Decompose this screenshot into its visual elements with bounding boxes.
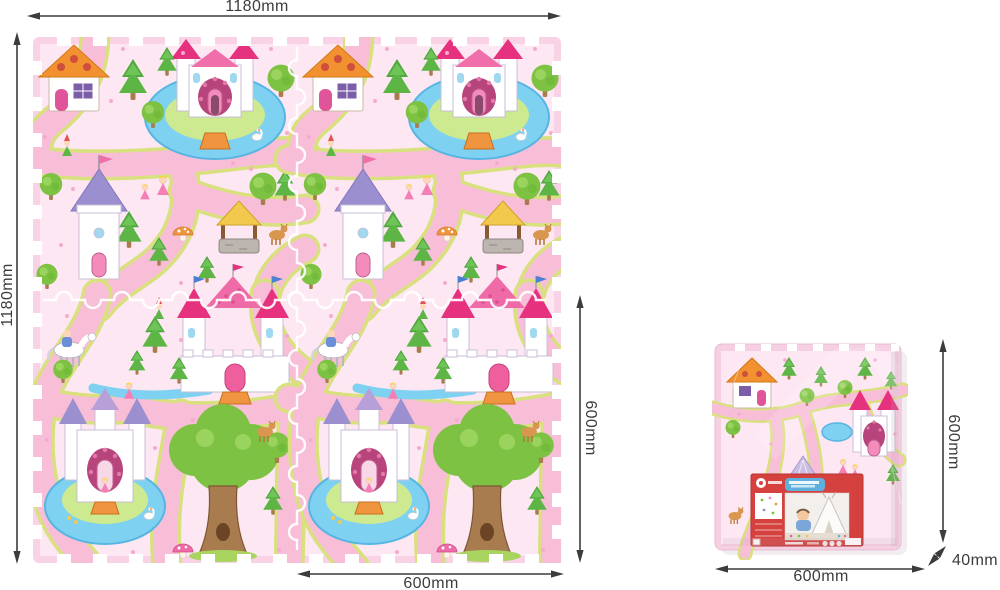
package-photo — [712, 342, 908, 560]
package-thickness-label: 40mm — [952, 553, 998, 569]
package-width-label: 600mm — [793, 569, 848, 585]
package-label — [751, 474, 863, 546]
mat-illustration — [33, 37, 561, 563]
package-height-label: 600mm — [945, 414, 961, 469]
label-title-banner — [785, 478, 825, 491]
mat-width-label: 1180mm — [225, 0, 288, 15]
label-photo — [785, 492, 849, 540]
tile-width-label: 600mm — [403, 576, 458, 590]
package-thickness-arrow — [925, 543, 949, 569]
mat-height-label: 1180mm — [0, 263, 16, 326]
label-pattern-thumbnail — [755, 493, 782, 519]
mat-width-arrow — [26, 10, 562, 22]
tile-height-label: 600mm — [582, 400, 598, 455]
product-dimension-diagram: 1180mm 1180mm 600mm 600mm 600mm 600mm 40… — [0, 0, 1000, 590]
